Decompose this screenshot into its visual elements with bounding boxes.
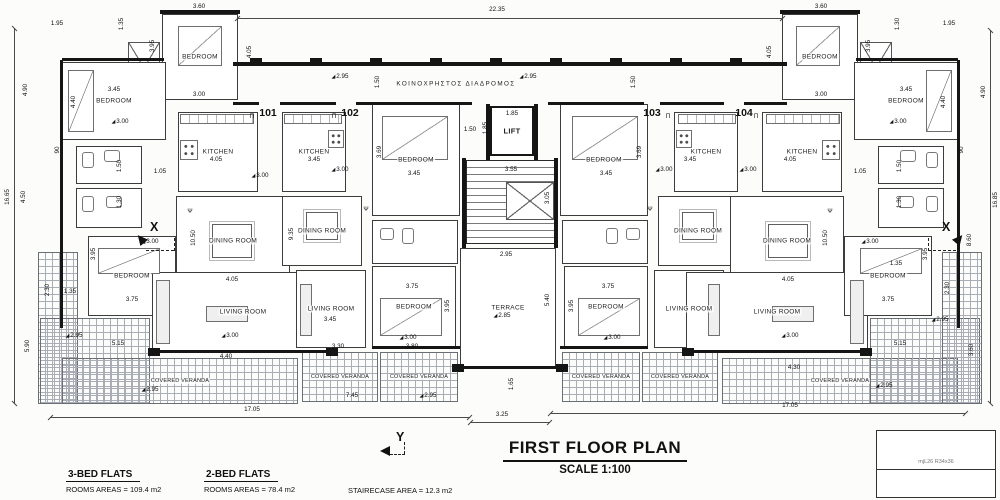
dim-label: 5.15 [894, 341, 906, 347]
dim-label: 5.15 [112, 341, 124, 347]
dim-label: 1.95 [943, 21, 955, 27]
dim-label: 1.50 [631, 76, 637, 88]
dim-label: Π [332, 114, 337, 120]
dim-label: 3.00 [603, 335, 620, 341]
dim-label: 5.90 [25, 340, 31, 352]
wall [490, 58, 502, 66]
dim-label: 3.75 [126, 297, 138, 303]
dim-label: 3.45 [900, 87, 912, 93]
wall [430, 58, 442, 66]
dim-label: 3.45 [324, 317, 336, 323]
terrace: TERRACE [460, 248, 556, 368]
dim-label: 3.75 [882, 297, 894, 303]
veranda-102-a: COVERED VERANDA [302, 352, 378, 402]
dim-label: 3.69 [377, 146, 383, 158]
dim-label: 1.50 [375, 76, 381, 88]
dim-label: 2.95 [519, 74, 536, 80]
bedroom-tower-right-label: BEDROOM [801, 54, 839, 61]
wall [462, 158, 466, 248]
wall [160, 10, 240, 14]
stove-glyph [180, 140, 198, 160]
dim-label: 1.65 [509, 378, 515, 390]
wall [660, 102, 724, 105]
wall [610, 58, 622, 66]
dim-label: 16.85 [993, 192, 999, 208]
counter-glyph [766, 114, 840, 124]
dim-label: 2.95 [419, 393, 436, 399]
dim-label: 1.35 [890, 261, 902, 267]
dim-label: 3.00 [815, 92, 827, 98]
dim-label: 2.95 [500, 252, 512, 258]
dimension-line [50, 417, 470, 418]
veranda-103-a-label: COVERED VERANDA [571, 374, 631, 380]
flat-number-101: 101 [259, 107, 277, 119]
dim-label: Ψ [647, 207, 652, 213]
living-103-label: LIVING ROOM [665, 306, 714, 313]
dim-label: 4.90 [981, 86, 987, 98]
living-101-label: LIVING ROOM [219, 309, 268, 316]
dim-label: 7.45 [346, 393, 358, 399]
flat-number-102: 102 [341, 107, 359, 119]
dim-label: 3.95 [445, 300, 451, 312]
kitchen-103: KITCHEN [674, 112, 738, 192]
dimension-line [470, 422, 550, 423]
legend-2bed-area: ROOMS AREAS = 78.4 m2 [204, 485, 295, 494]
dim-label: 3.00 [331, 167, 348, 173]
wall [310, 58, 322, 66]
page-title: FIRST FLOOR PLAN [503, 438, 687, 462]
page: { "title": {"main": "FIRST FLOOR PLAN", … [0, 0, 1000, 500]
axis-dash [174, 238, 175, 251]
dim-label: 3.45 [108, 87, 120, 93]
dim-label: 1.35 [119, 18, 125, 30]
dim-label: 2.95 [875, 383, 892, 389]
dim-label: Π [250, 114, 255, 120]
legend-2bed: 2-BED FLATS ROOMS AREAS = 78.4 m2 [204, 464, 295, 494]
wall [550, 58, 562, 66]
dim-label: 3.00 [399, 335, 416, 341]
dim-label: 2.30 [45, 284, 51, 296]
dim-label: 4.05 [782, 277, 794, 283]
bedroom-tower-left-label: BEDROOM [181, 54, 219, 61]
wall [356, 102, 472, 105]
dim-label: 1.50 [464, 127, 476, 133]
dining-103: DINING ROOM [658, 196, 738, 266]
kitchen-103-label: KITCHEN [690, 149, 723, 156]
bedroom-b-left-label: BEDROOM [113, 273, 151, 280]
veranda-102-b-label: COVERED VERANDA [389, 374, 449, 380]
wall [554, 158, 558, 248]
dim-label: 3.45 [308, 157, 320, 163]
dim-label: 1.85 [506, 111, 518, 117]
wall [452, 364, 464, 372]
dim-label: 4.50 [21, 191, 27, 203]
dim-label: 4.90 [23, 84, 29, 96]
dim-label: 3.00 [251, 173, 268, 179]
dim-label: 1.35 [64, 289, 76, 295]
wall [233, 102, 259, 105]
dim-label: 3.45 [684, 157, 696, 163]
flat-number-104: 104 [735, 107, 753, 119]
dim-label: 17.05 [782, 403, 798, 409]
bed-glyph [382, 116, 448, 160]
dim-label: 1.30 [117, 196, 123, 208]
dim-label: 1.05 [154, 169, 166, 175]
title-block-text: mjL26 R34x36 [877, 459, 995, 465]
axis-x-left-label: X [150, 220, 158, 234]
dim-label: 4.40 [220, 354, 232, 360]
wall [548, 102, 644, 105]
legend-3bed-title: 3-BED FLATS [66, 469, 140, 482]
dim-label: 3.55 [505, 167, 517, 173]
veranda-right-strip [942, 252, 982, 404]
wall [556, 364, 568, 372]
corridor: ΚΟΙΝΟΧΡΗΣΤΟΣ ΔΙΑΔΡΟΜΟΣ [236, 66, 676, 102]
dim-label: 4.05 [247, 46, 253, 58]
bedroom-a-right-label: BEDROOM [887, 98, 925, 105]
dim-label: 3.00 [221, 333, 238, 339]
dim-label: 3.00 [781, 333, 798, 339]
living-104-label: LIVING ROOM [753, 309, 802, 316]
veranda-103-b-label: COVERED VERANDA [650, 374, 710, 380]
bath-102 [372, 220, 458, 264]
bedroom-102-top-label: BEDROOM [397, 157, 435, 164]
axis-dash [146, 250, 174, 251]
wc-glyph [402, 228, 414, 244]
wall [860, 348, 872, 356]
wall [534, 104, 538, 160]
dim-label: 90 [55, 146, 61, 153]
table-glyph [306, 212, 338, 240]
dimension-line [14, 28, 15, 404]
dim-label: 2.95 [931, 317, 948, 323]
axis-dash [928, 250, 956, 251]
wall [730, 58, 742, 66]
wc-glyph [926, 152, 938, 168]
legend-3bed: 3-BED FLATS ROOMS AREAS = 109.4 m2 [66, 464, 161, 494]
dim-label: 10.50 [191, 230, 197, 246]
dim-label: 2.95 [331, 74, 348, 80]
dim-label: 3.00 [655, 167, 672, 173]
axis-arrow-icon [952, 232, 966, 246]
dim-label: 90 [959, 146, 965, 153]
dim-label: 22.35 [489, 7, 505, 13]
dim-label: Π [666, 114, 671, 120]
veranda-103-b: COVERED VERANDA [642, 352, 718, 402]
veranda-102-a-label: COVERED VERANDA [310, 374, 370, 380]
dim-label: 3.00 [193, 92, 205, 98]
living-102: LIVING ROOM [296, 270, 366, 348]
drawing-title: FIRST FLOOR PLAN SCALE 1:100 [470, 438, 720, 476]
dim-label: 4.40 [941, 96, 947, 108]
dim-label: 3.00 [739, 167, 756, 173]
dim-label: 1.30 [895, 18, 901, 30]
title-block: mjL26 R34x36 [876, 430, 996, 498]
axis-marker-x-left: X [150, 218, 158, 236]
stove-glyph [328, 130, 344, 148]
wall [744, 102, 787, 105]
dim-label: 4.05 [210, 157, 222, 163]
dim-label: 4.05 [767, 46, 773, 58]
dim-label: Ψ [827, 209, 832, 215]
wc-glyph [606, 228, 618, 244]
table-glyph [682, 212, 714, 240]
kitchen-102: KITCHEN [282, 112, 346, 192]
dining-101-label: DINING ROOM [208, 238, 258, 245]
wall [670, 58, 682, 66]
dim-label: 3.95 [150, 40, 156, 52]
kitchen-102-label: KITCHEN [298, 149, 331, 156]
dim-label: 3.60 [193, 4, 205, 10]
wall [560, 346, 648, 349]
axis-dash [928, 238, 929, 251]
wall [152, 350, 336, 353]
bed-glyph [572, 116, 638, 160]
veranda-104-label: COVERED VERANDA [810, 378, 870, 384]
floor-plan-canvas: X X Y FIRST FLOOR PLAN SCALE 1:100 3-BED… [0, 0, 1000, 500]
dim-label: 3.60 [969, 344, 975, 356]
dimension-line [990, 30, 991, 404]
dim-label: 2.30 [945, 282, 951, 294]
bedroom-a-left-label: BEDROOM [95, 98, 133, 105]
dim-label: 3.00 [111, 119, 128, 125]
wall [780, 10, 860, 14]
dim-label: 3.05 [545, 192, 551, 204]
drawing-scale: SCALE 1:100 [470, 464, 720, 476]
wall [60, 60, 63, 328]
bath-103 [562, 220, 648, 264]
wc-glyph [380, 228, 394, 240]
wall [370, 58, 382, 66]
counter-glyph [180, 114, 254, 124]
dim-label: 3.75 [406, 284, 418, 290]
dim-label: 3.95 [91, 248, 97, 260]
terrace-label: TERRACE [490, 305, 525, 312]
wall [62, 58, 164, 61]
lift-label: LIFT [502, 127, 521, 136]
veranda-101-label: COVERED VERANDA [150, 378, 210, 384]
dining-104-label: DINING ROOM [762, 238, 812, 245]
wc-glyph [82, 152, 94, 168]
dining-102-label: DINING ROOM [297, 228, 347, 235]
dim-label: 4.05 [784, 157, 796, 163]
dim-label: 3.45 [600, 171, 612, 177]
dim-label: 2.85 [493, 313, 510, 319]
veranda-101: COVERED VERANDA [62, 358, 298, 404]
dim-label: 17.05 [244, 407, 260, 413]
legend-3bed-area: ROOMS AREAS = 109.4 m2 [66, 485, 161, 494]
dim-label: 8.60 [967, 234, 973, 246]
bedroom-102-bot-label: BEDROOM [395, 304, 433, 311]
wc-glyph [926, 196, 938, 212]
dim-label: 3.95 [866, 40, 872, 52]
wc-glyph [626, 228, 640, 240]
dim-label: 1.85 [483, 122, 489, 134]
dim-label: 9.35 [289, 228, 295, 240]
dim-label: 3.69 [637, 146, 643, 158]
dim-label: 3.30 [332, 344, 344, 350]
axis-arrow-icon [380, 446, 390, 456]
axis-marker-x-right: X [942, 218, 950, 236]
dim-label: 1.50 [117, 160, 123, 172]
wall [856, 58, 958, 61]
stove-glyph [822, 140, 840, 160]
dim-label: 1.05 [854, 169, 866, 175]
bed-glyph [98, 248, 160, 274]
corridor-label: ΚΟΙΝΟΧΡΗΣΤΟΣ ΔΙΑΔΡΟΜΟΣ [395, 81, 516, 88]
dim-label: Π [754, 114, 759, 120]
legend-staircase-area: STAIRECASE AREA = 12.3 m2 [348, 486, 452, 495]
dim-label: 3.00 [889, 119, 906, 125]
dim-label: 2.95 [141, 387, 158, 393]
wall [682, 348, 694, 356]
dim-label: Ψ [363, 207, 368, 213]
dim-label: 1.50 [897, 160, 903, 172]
dim-label: 3.95 [569, 300, 575, 312]
stove-glyph [676, 130, 692, 148]
bedroom-b-right-label: BEDROOM [869, 273, 907, 280]
dim-label: 4.05 [226, 277, 238, 283]
dim-label: 5.40 [545, 294, 551, 306]
counter-glyph [678, 114, 736, 124]
dimension-line [237, 18, 783, 19]
dim-label: 1.95 [51, 21, 63, 27]
kitchen-101-label: KITCHEN [202, 149, 235, 156]
axis-x-right-label: X [942, 220, 950, 234]
dim-label: 2.95 [65, 333, 82, 339]
wall [148, 348, 160, 356]
kitchen-104-label: KITCHEN [786, 149, 819, 156]
dimension-line [550, 413, 966, 414]
dim-label: 1.30 [897, 196, 903, 208]
dim-label: 4.30 [788, 365, 800, 371]
flat-number-103: 103 [643, 107, 661, 119]
dim-label: 3.25 [496, 412, 508, 418]
dim-label: 3.75 [602, 284, 614, 290]
sofa-glyph [850, 280, 864, 344]
dining-103-label: DINING ROOM [673, 228, 723, 235]
dim-label: 3.00 [861, 239, 878, 245]
legend-2bed-title: 2-BED FLATS [204, 469, 278, 482]
veranda-103-a: COVERED VERANDA [562, 352, 640, 402]
title-block-divider [877, 469, 995, 470]
wall [458, 366, 558, 369]
dim-label: 4.40 [71, 96, 77, 108]
axis-marker-y-bottom: Y [396, 428, 404, 446]
wall [250, 58, 262, 66]
wc-glyph [82, 196, 94, 212]
sofa-glyph [156, 280, 170, 344]
bedroom-103-top-label: BEDROOM [585, 157, 623, 164]
wall [684, 350, 868, 353]
dim-label: 3.60 [815, 4, 827, 10]
bedroom-103-bot-label: BEDROOM [587, 304, 625, 311]
wall [280, 102, 336, 105]
axis-dash [404, 442, 405, 454]
dim-label: 3.80 [406, 344, 418, 350]
wall [957, 60, 960, 328]
dim-label: Ψ [187, 209, 192, 215]
dim-label: 3.45 [408, 171, 420, 177]
dim-label: 10.50 [823, 230, 829, 246]
living-102-label: LIVING ROOM [307, 306, 356, 313]
axis-dash [390, 454, 405, 455]
dim-label: 16.65 [5, 189, 11, 205]
